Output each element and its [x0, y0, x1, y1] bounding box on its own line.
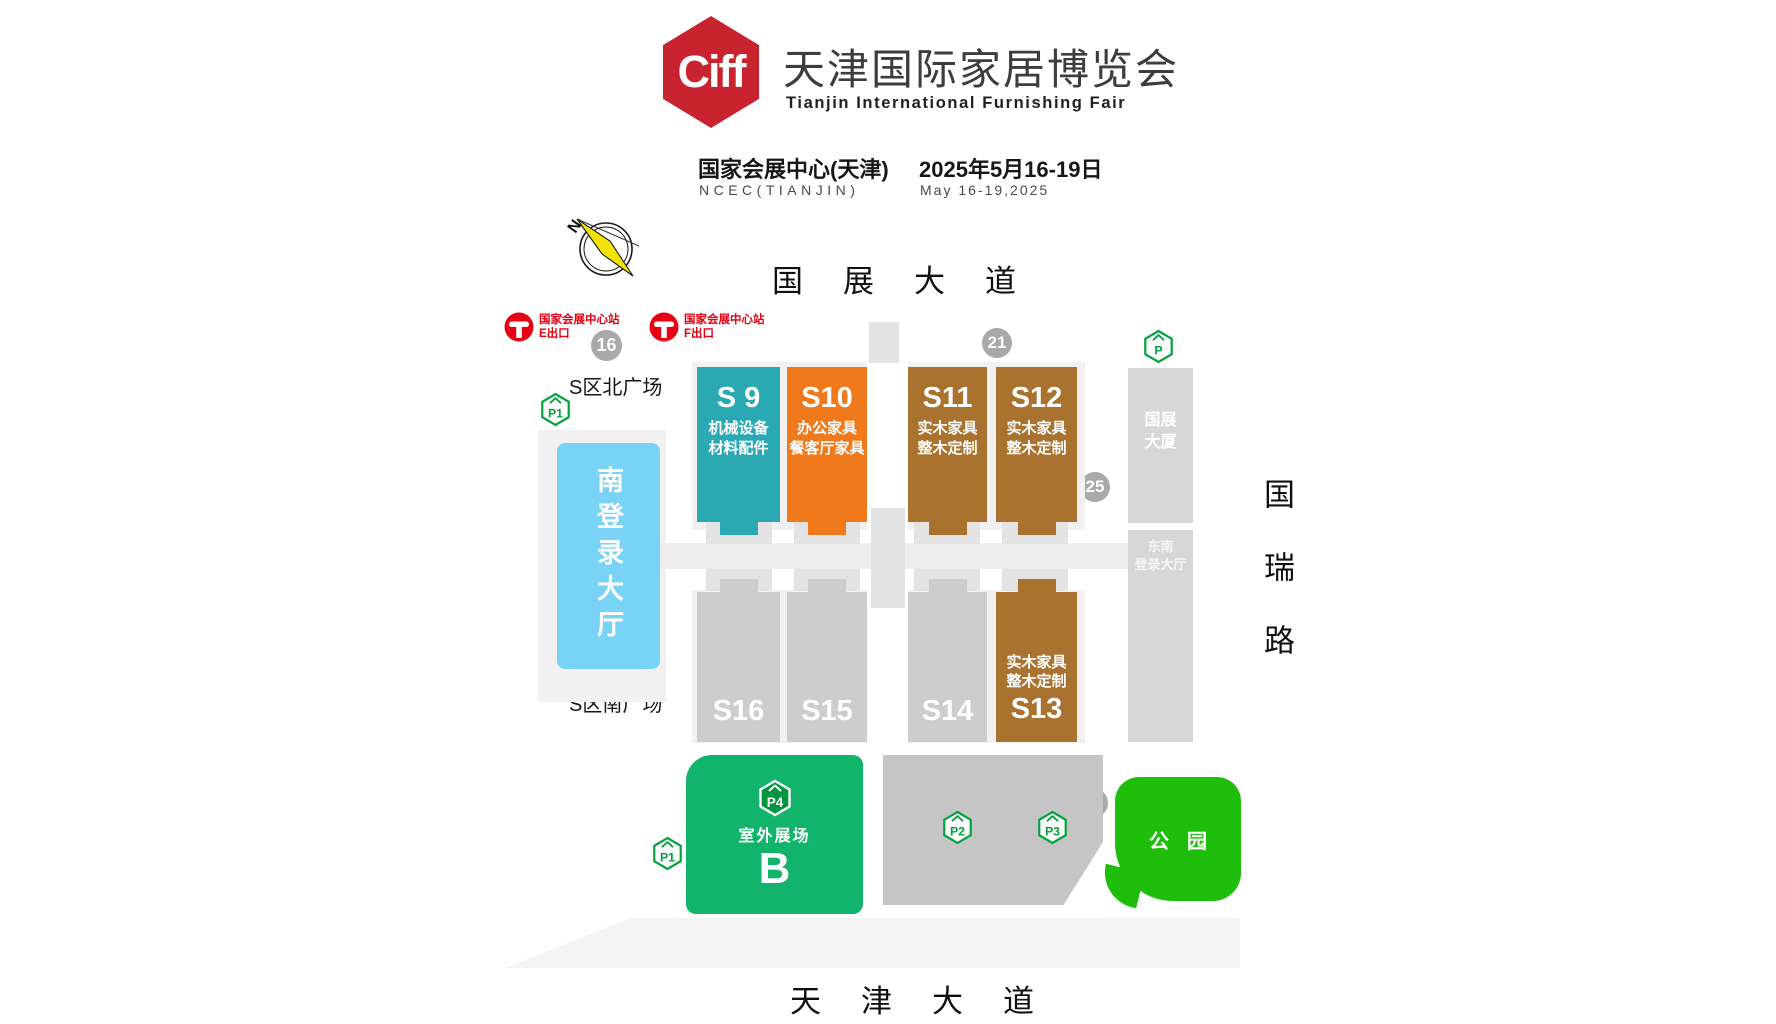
road-label-tianjin-avenue: 天津大道: [790, 976, 1074, 1021]
north-plaza-label: S区北广场: [569, 371, 662, 400]
fair-title-cn: 天津国际家居博览会: [783, 36, 1179, 97]
metro-exit-f-label: F出口: [684, 327, 765, 341]
parking-icon-p2: P2: [942, 810, 973, 845]
hall-desc-line: 整木定制: [1006, 439, 1066, 459]
parking-icon-p1-north: P1: [540, 392, 571, 427]
parking-lot-area: [883, 755, 1103, 905]
parking-icon-p1-south: P1: [652, 836, 683, 871]
hall-desc: 实木家具 整木定制: [996, 653, 1077, 693]
venue-name-en: NCEC(TIANJIN): [699, 182, 859, 198]
hall-desc-line: 实木家具: [917, 419, 977, 439]
outdoor-area-label: 室外展场: [738, 822, 810, 846]
south-login-hall: 南登录大厅: [557, 443, 660, 669]
hall-desc-line: 实木家具: [1006, 419, 1066, 439]
fair-title-en: Tianjin International Furnishing Fair: [786, 94, 1126, 113]
fair-dates-cn: 2025年5月16-19日: [919, 152, 1102, 184]
ciff-logo-text: Ciff: [678, 46, 745, 98]
hall-desc: 机械设备 材料配件: [708, 419, 768, 459]
hall-desc: 办公家具 餐客厅家具: [789, 419, 864, 459]
svg-text:P3: P3: [1045, 825, 1060, 839]
hall-text: 实木家具 整木定制 S13: [996, 653, 1077, 726]
guozhan-tower: 国展 大厦: [1128, 368, 1193, 523]
hall-s11: S11 实木家具 整木定制: [908, 367, 987, 522]
hall-id: S11: [923, 383, 973, 415]
compass-north-label: N: [565, 217, 586, 236]
southeast-login-hall-label: 登录大厅: [1128, 556, 1193, 574]
park-label: 公园: [1149, 825, 1225, 854]
hall-id: S13: [996, 694, 1077, 726]
guozhan-tower-label: 大厦: [1128, 432, 1193, 454]
road-label-guorui-road: 国瑞路: [1254, 478, 1299, 697]
svg-text:P: P: [1154, 344, 1162, 358]
guozhan-tower-label: 国展: [1128, 410, 1193, 432]
hall-desc-line: 办公家具: [789, 419, 864, 439]
southeast-login-hall: 东南 登录大厅: [1128, 530, 1193, 742]
hall-s13: 实木家具 整木定制 S13: [996, 592, 1077, 742]
gate-21-badge: 21: [982, 328, 1012, 358]
hall-id: S12: [1011, 383, 1063, 415]
park-area: 公园: [1115, 777, 1241, 901]
svg-text:P4: P4: [766, 795, 783, 810]
hall-id: S16: [697, 695, 780, 728]
svg-text:P1: P1: [660, 851, 675, 865]
fair-dates-en: May 16-19,2025: [920, 182, 1049, 198]
south-login-hall-label: 南登录大厅: [589, 466, 628, 646]
hall-desc-line: 整木定制: [996, 672, 1077, 692]
hall-id: S 9: [717, 383, 761, 415]
parking-icon-p4: P4: [758, 779, 792, 817]
southeast-login-hall-label: 东南: [1128, 538, 1193, 556]
hall-s15: S15: [787, 592, 867, 742]
ciff-logo: Ciff: [663, 16, 759, 128]
metro-station-name: 国家会展中心站: [539, 313, 620, 327]
svg-text:P1: P1: [548, 407, 563, 421]
mid-walkway: [871, 508, 905, 608]
metro-station-name: 国家会展中心站: [684, 313, 765, 327]
hall-s12: S12 实木家具 整木定制: [996, 367, 1077, 522]
road-label-guozhan-avenue: 国展大道: [772, 256, 1056, 301]
parking-icon-p-east: P: [1143, 329, 1174, 364]
hall-s9: S 9 机械设备 材料配件: [697, 367, 780, 522]
metro-icon-east: [649, 312, 679, 342]
hall-s10: S10 办公家具 餐客厅家具: [787, 367, 867, 522]
compass-icon: N: [563, 206, 643, 286]
hall-s14: S14: [908, 592, 987, 742]
hall-s16: S16: [697, 592, 780, 742]
metro-station-east: 国家会展中心站 F出口: [684, 313, 765, 341]
parking-icon-p3: P3: [1037, 810, 1068, 845]
svg-text:P2: P2: [950, 825, 965, 839]
hall-desc-line: 材料配件: [708, 439, 768, 459]
hall-desc: 实木家具 整木定制: [1006, 419, 1066, 459]
hall-desc-line: 整木定制: [917, 439, 977, 459]
hall-desc-line: 实木家具: [996, 653, 1077, 673]
hall-id: S10: [801, 383, 853, 415]
hall-desc-line: 机械设备: [708, 419, 768, 439]
venue-name-cn: 国家会展中心(天津): [698, 152, 889, 184]
hall-id: S14: [908, 695, 987, 728]
north-entrance-walkway: [869, 322, 899, 363]
hall-id: S15: [787, 695, 867, 728]
hall-desc-line: 餐客厅家具: [789, 439, 864, 459]
metro-icon-west: [504, 312, 534, 342]
fair-map-page: Ciff 天津国际家居博览会 Tianjin International Fur…: [0, 0, 1776, 1024]
outdoor-area-letter: B: [759, 846, 791, 892]
hall-desc: 实木家具 整木定制: [917, 419, 977, 459]
outdoor-exhibition-area-b: P4 室外展场 B: [686, 755, 863, 914]
gate-16-badge: 16: [591, 330, 622, 361]
tianjin-avenue-road-shape: [505, 918, 1240, 968]
